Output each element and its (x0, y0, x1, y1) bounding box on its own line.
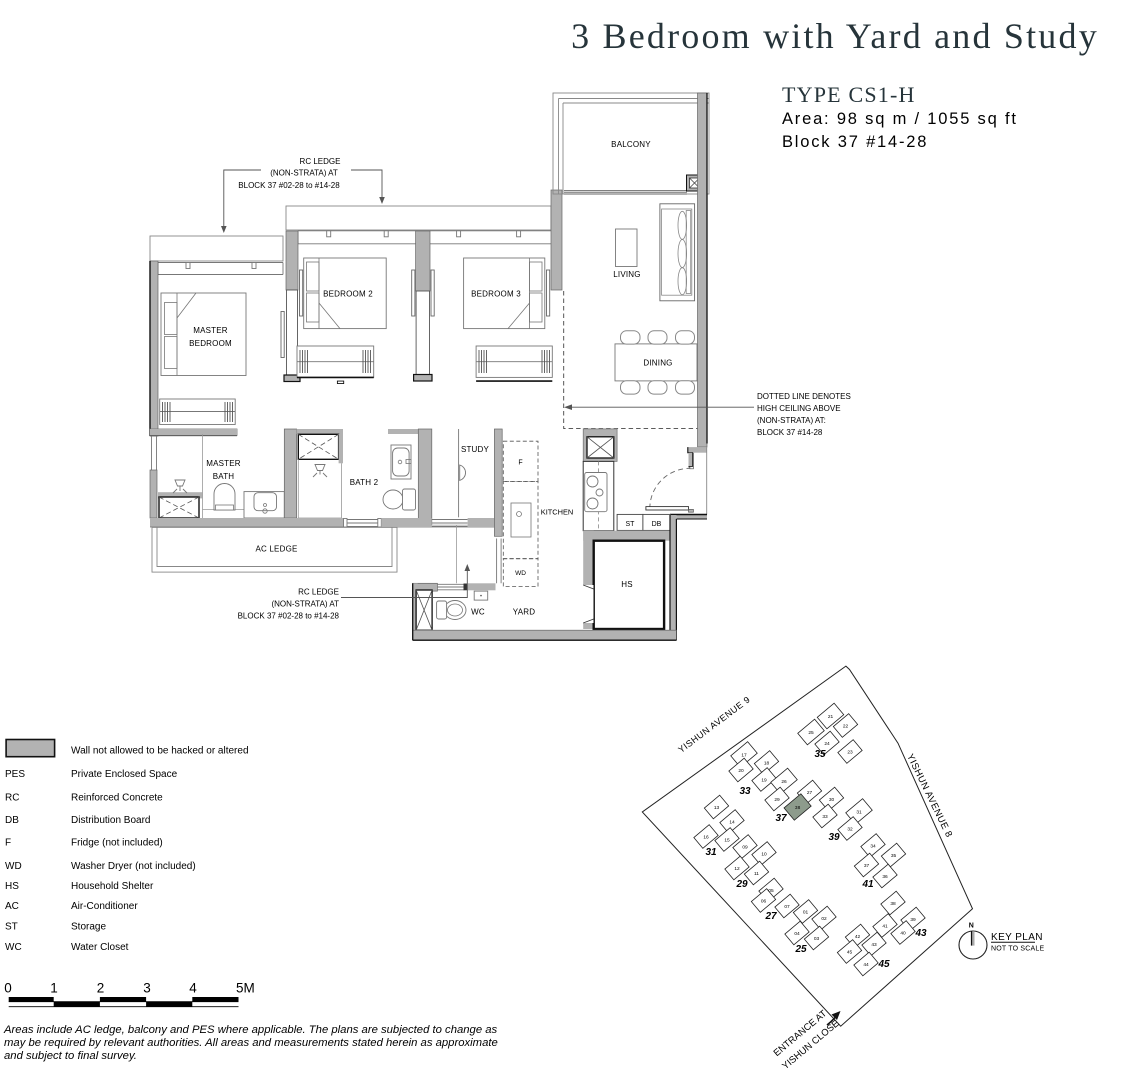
svg-text:29: 29 (735, 879, 748, 890)
svg-text:22: 22 (843, 724, 849, 730)
svg-text:27: 27 (764, 911, 777, 922)
svg-text:DB: DB (5, 815, 19, 826)
svg-text:AC LEDGE: AC LEDGE (255, 545, 297, 554)
svg-text:41: 41 (861, 879, 874, 890)
svg-text:Household Shelter: Household Shelter (71, 881, 154, 892)
svg-text:BATH 2: BATH 2 (350, 478, 379, 487)
svg-text:HIGH CEILING ABOVE: HIGH CEILING ABOVE (757, 404, 841, 413)
svg-text:17: 17 (741, 753, 747, 759)
svg-text:RC: RC (5, 793, 19, 804)
svg-text:WC: WC (471, 608, 485, 617)
svg-text:F: F (5, 838, 11, 849)
svg-text:31: 31 (705, 847, 717, 858)
svg-text:25: 25 (808, 730, 814, 736)
svg-text:4: 4 (189, 981, 197, 996)
svg-text:43: 43 (871, 942, 877, 948)
svg-text:BEDROOM 3: BEDROOM 3 (471, 290, 521, 299)
svg-text:38: 38 (795, 805, 801, 811)
svg-text:33: 33 (822, 814, 828, 820)
svg-text:11: 11 (754, 871, 759, 877)
svg-text:Storage: Storage (71, 922, 106, 933)
svg-text:16: 16 (703, 835, 709, 841)
svg-text:KITCHEN: KITCHEN (541, 508, 573, 517)
svg-text:09: 09 (742, 845, 748, 851)
svg-text:MASTER: MASTER (193, 326, 228, 335)
svg-text:45: 45 (847, 950, 853, 956)
svg-text:45: 45 (877, 959, 890, 970)
svg-text:RC LEDGE: RC LEDGE (300, 157, 341, 166)
svg-text:05: 05 (768, 888, 774, 894)
svg-text:41: 41 (882, 924, 888, 930)
svg-text:Private Enclosed Space: Private Enclosed Space (71, 769, 178, 780)
svg-text:N: N (969, 923, 974, 930)
svg-text:F: F (518, 460, 522, 467)
svg-text:32: 32 (847, 827, 853, 833)
svg-text:20: 20 (738, 768, 744, 774)
svg-text:25: 25 (794, 944, 807, 955)
svg-text:29: 29 (774, 797, 780, 803)
svg-text:39: 39 (828, 832, 840, 843)
svg-text:Water Closet: Water Closet (71, 942, 129, 953)
svg-text:BEDROOM 2: BEDROOM 2 (323, 290, 373, 299)
svg-text:(NON-STRATA) AT: (NON-STRATA) AT (270, 169, 338, 178)
svg-text:STUDY: STUDY (461, 445, 490, 454)
svg-text:Distribution Board: Distribution Board (71, 815, 150, 826)
svg-text:(NON-STRATA) AT: (NON-STRATA) AT (271, 600, 339, 609)
svg-text:27: 27 (807, 790, 813, 796)
svg-text:33: 33 (739, 786, 751, 797)
svg-text:31: 31 (856, 810, 862, 816)
svg-text:PES: PES (5, 769, 25, 780)
svg-text:NOT TO SCALE: NOT TO SCALE (991, 946, 1044, 953)
svg-text:19: 19 (761, 778, 767, 784)
svg-text:BLOCK 37 #02-28 to #14-28: BLOCK 37 #02-28 to #14-28 (238, 181, 340, 190)
svg-text:HS: HS (5, 881, 19, 892)
svg-text:Air-Conditioner: Air-Conditioner (71, 901, 138, 912)
svg-text:37: 37 (775, 813, 787, 824)
svg-text:07: 07 (784, 904, 790, 910)
svg-text:DOTTED LINE DENOTES: DOTTED LINE DENOTES (757, 392, 851, 401)
svg-text:38: 38 (890, 901, 896, 907)
svg-text:1: 1 (50, 981, 58, 996)
svg-text:35: 35 (891, 853, 897, 859)
svg-text:01: 01 (803, 910, 809, 916)
svg-text:2: 2 (97, 981, 105, 996)
svg-text:42: 42 (855, 934, 861, 940)
svg-text:YARD: YARD (513, 608, 535, 617)
svg-text:02: 02 (821, 916, 827, 922)
svg-text:BLOCK 37 #02-28 to #14-28: BLOCK 37 #02-28 to #14-28 (238, 612, 340, 621)
svg-text:ST: ST (5, 922, 18, 933)
svg-text:13: 13 (714, 805, 720, 811)
svg-text:36: 36 (882, 874, 888, 880)
svg-text:(NON-STRATA) AT:: (NON-STRATA) AT: (757, 416, 826, 425)
svg-text:TYPE CS1-H: TYPE CS1-H (782, 82, 916, 107)
svg-text:Wall not allowed to be hacked: Wall not allowed to be hacked or altered (71, 746, 249, 757)
svg-text:24: 24 (824, 741, 830, 747)
svg-text:04: 04 (794, 931, 800, 937)
svg-text:DB: DB (652, 521, 662, 528)
svg-text:37: 37 (864, 863, 870, 869)
svg-text:WC: WC (5, 942, 22, 953)
svg-text:KEY PLAN: KEY PLAN (991, 932, 1043, 943)
svg-text:Areas include AC ledge, balcon: Areas include AC ledge, balcony and PES … (3, 1024, 498, 1036)
svg-text:may be required by relevant au: may be required by relevant authorities.… (4, 1037, 498, 1049)
svg-text:18: 18 (764, 761, 770, 767)
svg-text:Reinforced Concrete: Reinforced Concrete (71, 793, 163, 804)
svg-text:26: 26 (781, 779, 787, 785)
svg-text:DINING: DINING (643, 359, 672, 368)
svg-text:03: 03 (814, 936, 820, 942)
svg-text:AC: AC (5, 901, 19, 912)
svg-text:5M: 5M (236, 981, 255, 996)
svg-text:Block 37 #14-28: Block 37 #14-28 (782, 133, 928, 151)
svg-text:43: 43 (914, 928, 927, 939)
svg-text:21: 21 (828, 714, 834, 720)
svg-text:14: 14 (729, 820, 735, 826)
svg-text:BEDROOM: BEDROOM (189, 339, 232, 348)
svg-text:34: 34 (870, 844, 876, 850)
svg-text:39: 39 (910, 917, 916, 923)
svg-text:30: 30 (829, 797, 835, 803)
svg-text:Area: 98 sq m / 1055 sq ft: Area: 98 sq m / 1055 sq ft (782, 110, 1018, 128)
svg-text:HS: HS (621, 580, 633, 589)
svg-text:06: 06 (761, 899, 767, 905)
svg-text:MASTER: MASTER (206, 459, 241, 468)
svg-text:Fridge (not included): Fridge (not included) (71, 838, 163, 849)
svg-text:BLOCK 37 #14-28: BLOCK 37 #14-28 (757, 428, 823, 437)
svg-text:BATH: BATH (213, 472, 235, 481)
svg-text:LIVING: LIVING (613, 270, 640, 279)
svg-text:3: 3 (143, 981, 151, 996)
svg-text:WD: WD (515, 570, 526, 577)
svg-text:15: 15 (724, 838, 730, 844)
svg-text:BALCONY: BALCONY (611, 140, 651, 149)
svg-text:3 Bedroom with Yard and Study: 3 Bedroom with Yard and Study (571, 16, 1099, 56)
svg-text:Washer Dryer (not included): Washer Dryer (not included) (71, 861, 196, 872)
svg-text:12: 12 (734, 866, 740, 872)
svg-text:10: 10 (761, 852, 767, 858)
svg-text:0: 0 (4, 981, 12, 996)
svg-text:ST: ST (626, 521, 636, 528)
svg-text:35: 35 (814, 749, 826, 760)
svg-text:44: 44 (863, 962, 869, 968)
svg-text:WD: WD (5, 861, 22, 872)
svg-text:RC LEDGE: RC LEDGE (298, 588, 339, 597)
svg-text:and subject to final survey.: and subject to final survey. (4, 1050, 137, 1062)
svg-text:40: 40 (900, 931, 906, 937)
svg-text:23: 23 (847, 750, 853, 756)
